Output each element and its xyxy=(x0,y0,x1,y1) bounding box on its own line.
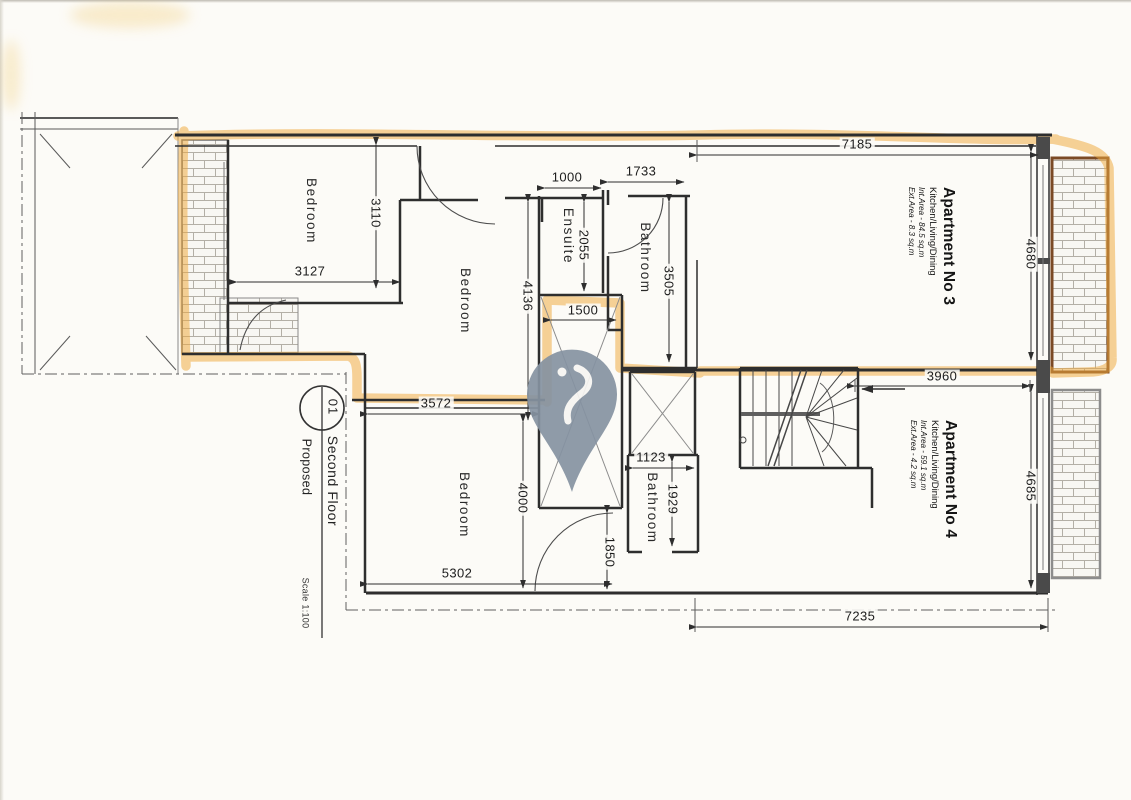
terrace-void xyxy=(20,112,178,374)
dim-2055: 2055 xyxy=(578,228,591,263)
apartment-4-name: Apartment No 4 xyxy=(942,420,958,570)
room-label-bedroom-bottom: Bedroom xyxy=(457,472,471,538)
drawing-status: Proposed xyxy=(300,439,313,496)
apartment-3-ext-area: Ext.Area - 8.3 sq.m xyxy=(906,187,916,337)
dim-3572: 3572 xyxy=(419,397,454,410)
staircase xyxy=(740,370,905,466)
room-label-bathroom-bottom: Bathroom xyxy=(645,472,659,543)
floor-plan-page: 7185 1000 1733 3127 1500 3960 3572 1123 … xyxy=(0,0,1131,800)
dim-7235: 7235 xyxy=(843,610,878,623)
dim-1929: 1929 xyxy=(667,482,680,517)
dim-4680: 4680 xyxy=(1025,237,1038,272)
apartment-3-use: Kitchen/Living/Dining xyxy=(926,187,936,337)
apartment-4-int-area: Int.Area - 59.1 sq.m xyxy=(918,420,928,570)
drawing-title: Second Floor xyxy=(326,436,340,526)
room-label-bathroom-top: Bathroom xyxy=(638,222,652,293)
dim-7185: 7185 xyxy=(840,138,875,151)
location-pin-icon xyxy=(527,350,617,492)
apartment-3-label: Apartment No 3 Kitchen/Living/Dining Int… xyxy=(906,187,956,337)
dim-3127: 3127 xyxy=(293,265,328,278)
dim-4685: 4685 xyxy=(1025,469,1038,504)
apartment-4-use: Kitchen/Living/Dining xyxy=(928,420,938,570)
tiled-patio-small xyxy=(220,298,298,354)
dim-3960: 3960 xyxy=(925,370,960,383)
drawing-scale: Scale 1:100 xyxy=(301,578,310,629)
dim-3505: 3505 xyxy=(663,264,676,299)
apartment-3-int-area: Int.Area - 84.5 sq.m xyxy=(916,187,926,337)
lift-shaft-cross xyxy=(632,374,693,453)
room-label-bedroom-middle: Bedroom xyxy=(458,268,472,334)
room-label-bedroom-top-left: Bedroom xyxy=(304,178,318,244)
dim-4000: 4000 xyxy=(517,481,530,516)
balcony-apartment-3 xyxy=(1052,158,1108,372)
dim-5302: 5302 xyxy=(440,567,475,580)
dim-1500: 1500 xyxy=(566,304,601,317)
dim-1000: 1000 xyxy=(550,171,585,184)
room-label-ensuite: Ensuite xyxy=(561,208,575,264)
drawing-number: 01 xyxy=(327,399,340,415)
dim-1733: 1733 xyxy=(624,165,659,178)
apartment-4-ext-area: Ext.Area - 4.2 sq.m xyxy=(908,420,918,570)
dim-3110: 3110 xyxy=(370,196,383,230)
dim-1123: 1123 xyxy=(634,451,668,464)
dim-1850: 1850 xyxy=(604,535,617,570)
floor-plan-drawing xyxy=(0,0,1131,800)
dim-4136: 4136 xyxy=(522,279,535,314)
balcony-apartment-4 xyxy=(1052,390,1100,578)
apartment-3-name: Apartment No 3 xyxy=(940,187,956,337)
apartment-4-label: Apartment No 4 Kitchen/Living/Dining Int… xyxy=(908,420,958,570)
